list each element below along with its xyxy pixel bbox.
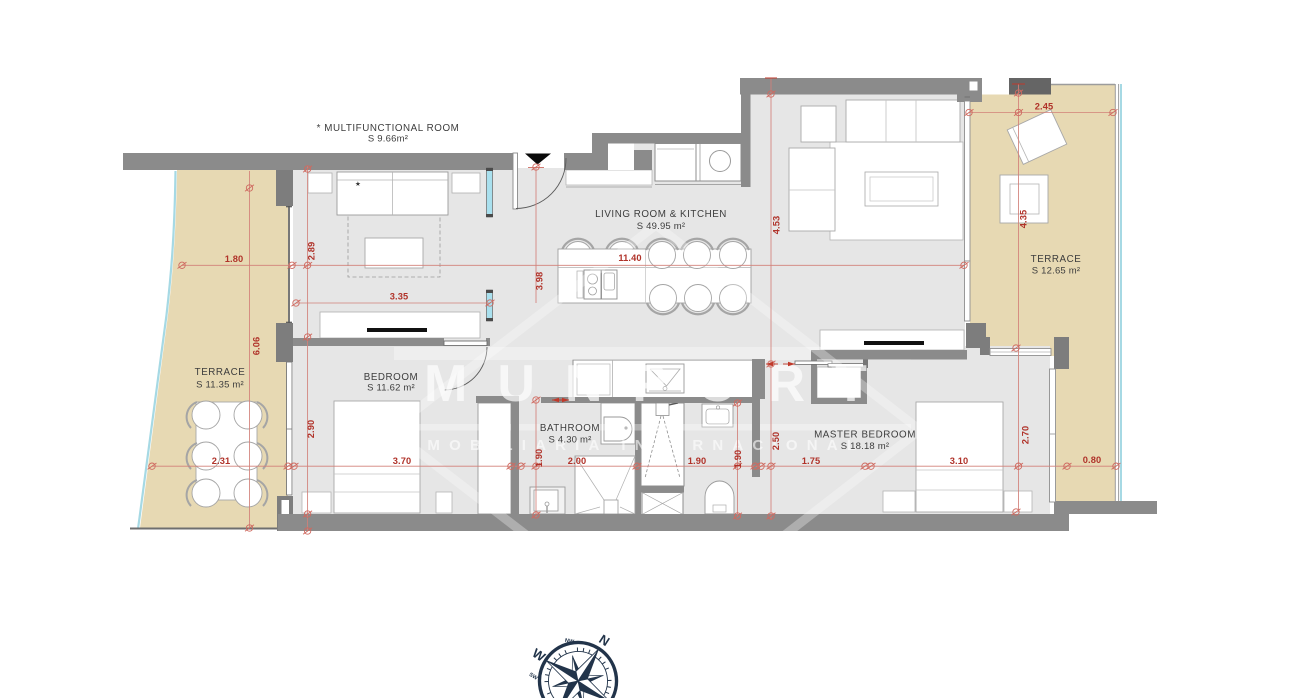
svg-text:MASTER BEDROOM: MASTER BEDROOM bbox=[814, 430, 916, 441]
svg-text:3.70: 3.70 bbox=[393, 456, 412, 466]
svg-text:S 49.95 m²: S 49.95 m² bbox=[637, 221, 685, 232]
svg-text:4.53: 4.53 bbox=[772, 216, 782, 235]
svg-text:2.89: 2.89 bbox=[307, 242, 317, 261]
svg-text:3.35: 3.35 bbox=[390, 292, 409, 302]
svg-text:MUNPORT: MUNPORT bbox=[424, 355, 897, 413]
svg-text:1.90: 1.90 bbox=[534, 449, 544, 468]
svg-text:S 9.66m²: S 9.66m² bbox=[368, 134, 408, 145]
svg-text:BATHROOM: BATHROOM bbox=[540, 423, 600, 434]
svg-text:2.00: 2.00 bbox=[568, 456, 587, 466]
svg-text:2.90: 2.90 bbox=[306, 420, 316, 439]
svg-text:2.31: 2.31 bbox=[212, 456, 231, 466]
svg-text:11.40: 11.40 bbox=[618, 253, 641, 263]
svg-text:3.98: 3.98 bbox=[535, 272, 545, 291]
svg-text:LIVING ROOM & KITCHEN: LIVING ROOM & KITCHEN bbox=[595, 209, 727, 220]
svg-text:1.75: 1.75 bbox=[802, 456, 821, 466]
svg-text:6.06: 6.06 bbox=[252, 337, 262, 356]
svg-text:1.90: 1.90 bbox=[733, 450, 743, 469]
svg-text:1.80: 1.80 bbox=[225, 254, 244, 264]
svg-text:SW: SW bbox=[528, 672, 539, 682]
svg-text:N: N bbox=[596, 631, 612, 649]
svg-text:2.50: 2.50 bbox=[771, 432, 781, 451]
svg-text:S 11.62 m²: S 11.62 m² bbox=[367, 383, 415, 394]
svg-text:★: ★ bbox=[355, 180, 361, 188]
svg-text:INMOBILIARIA INTERNACIONAL: INMOBILIARIA INTERNACIONAL bbox=[394, 437, 865, 454]
svg-text:4.35: 4.35 bbox=[1019, 210, 1029, 229]
svg-text:TERRACE: TERRACE bbox=[1031, 254, 1082, 265]
svg-text:TERRACE: TERRACE bbox=[195, 367, 246, 378]
svg-text:S 18.18 m²: S 18.18 m² bbox=[841, 441, 889, 452]
svg-text:0.80: 0.80 bbox=[1083, 455, 1102, 465]
svg-text:1.90: 1.90 bbox=[688, 456, 707, 466]
svg-text:2.70: 2.70 bbox=[1021, 426, 1031, 445]
svg-text:3.10: 3.10 bbox=[950, 456, 969, 466]
svg-text:BEDROOM: BEDROOM bbox=[364, 372, 418, 383]
svg-text:S 4.30 m²: S 4.30 m² bbox=[549, 435, 592, 446]
svg-text:S 12.65 m²: S 12.65 m² bbox=[1032, 266, 1080, 277]
svg-text:* MULTIFUNCTIONAL ROOM: * MULTIFUNCTIONAL ROOM bbox=[317, 123, 460, 134]
svg-text:S 11.35 m²: S 11.35 m² bbox=[196, 380, 244, 391]
svg-text:2.45: 2.45 bbox=[1035, 102, 1054, 112]
